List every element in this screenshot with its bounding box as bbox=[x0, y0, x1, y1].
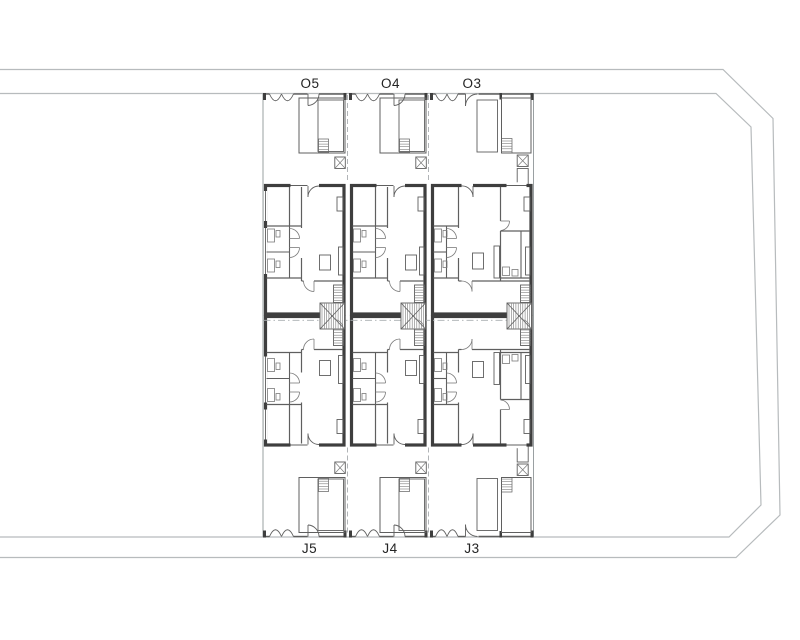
unit-label-j4: J4 bbox=[382, 541, 397, 556]
unit-label-j3: J3 bbox=[464, 541, 479, 556]
party-line-stairwell bbox=[320, 303, 345, 329]
housing-block-plan bbox=[263, 93, 534, 538]
unit-label-o4: O4 bbox=[381, 76, 400, 91]
unit-label-o5: O5 bbox=[300, 76, 319, 91]
unit-j4 bbox=[349, 317, 428, 538]
unit-label-j5: J5 bbox=[302, 541, 317, 556]
site-plan-canvas: O5 O4 O3 J5 J4 J3 bbox=[0, 0, 800, 640]
unit-j3 bbox=[430, 317, 534, 538]
unit-o5 bbox=[263, 93, 347, 314]
site-plan-svg: O5 O4 O3 J5 J4 J3 bbox=[0, 0, 800, 640]
unit-label-o3: O3 bbox=[462, 76, 481, 91]
unit-o3 bbox=[430, 93, 534, 314]
unit-o4 bbox=[349, 93, 428, 314]
party-line-stairwell bbox=[401, 303, 426, 329]
party-line-stairwell bbox=[507, 303, 532, 329]
unit-j5 bbox=[263, 317, 347, 538]
